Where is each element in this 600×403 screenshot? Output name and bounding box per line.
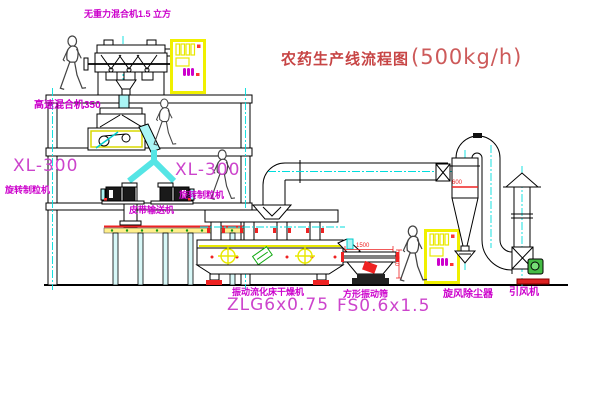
label-cyclone: 旋风除尘器 <box>443 290 493 300</box>
dryer-ports <box>207 222 324 240</box>
label-belt-conveyor: 皮带输送机 <box>129 206 174 215</box>
exhaust-duct <box>263 160 452 205</box>
fluid-bed-dryer <box>197 205 360 285</box>
process-flow-diagram: 农药生产线流程图 (500kg/h) 无重力混合机1.5 立方 高速混合机350… <box>0 0 600 403</box>
label-sieve-model: FS0.6x1.5 <box>337 298 430 315</box>
worker-top-floor <box>60 36 86 89</box>
worker-second-floor <box>154 99 176 145</box>
draft-fan <box>512 247 549 284</box>
dimension-cyclone-diameter: 600 <box>452 180 462 186</box>
label-granulator-right-model: XL-300 <box>175 162 240 179</box>
title-chinese: 农药生产线流程图 <box>281 48 409 69</box>
title-capacity: (500kg/h) <box>411 45 522 69</box>
label-granulator-left-name: 旋转制粒机 <box>5 186 50 195</box>
control-cabinet-ground <box>426 231 459 283</box>
control-cabinet-top <box>172 41 205 93</box>
label-fan: 引风机 <box>509 288 539 298</box>
label-granulator-left-model: XL-300 <box>13 158 78 175</box>
worker-ground-floor <box>400 226 426 281</box>
dimension-sieve-length: 1500 <box>356 243 369 249</box>
label-gravity-mixer: 无重力混合机1.5 立方 <box>84 10 171 19</box>
label-granulator-right-name: 旋转制粒机 <box>179 191 224 200</box>
label-dryer-model: ZLG6x0.75 <box>227 297 329 314</box>
granulator-left <box>101 183 144 204</box>
dimension-sieve-height: 540 <box>393 256 399 266</box>
label-high-speed-mixer: 高速混合机350 <box>34 101 101 111</box>
diagram-title: 农药生产线流程图 (500kg/h) <box>281 45 522 69</box>
gravity-free-mixer <box>84 36 178 96</box>
